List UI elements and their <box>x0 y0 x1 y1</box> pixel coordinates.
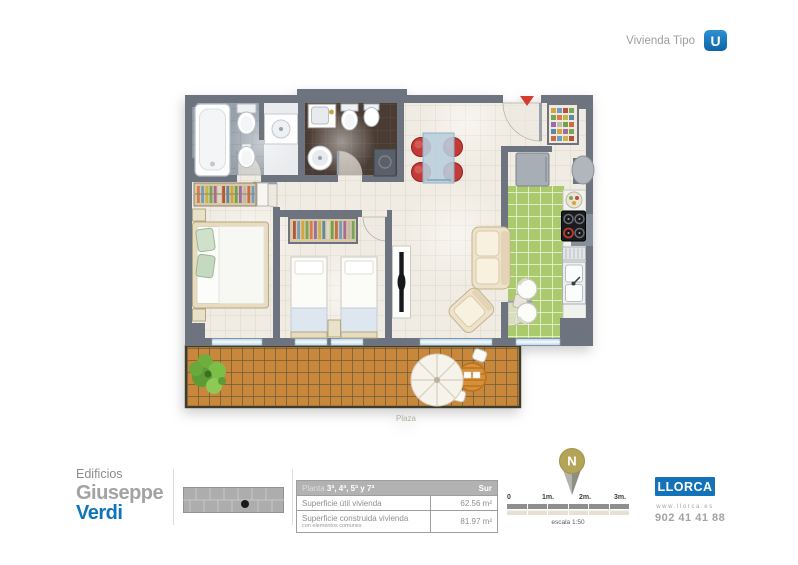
publisher-website: www.llorca.es <box>655 504 715 510</box>
kitchen-sink <box>563 262 586 304</box>
dish-rack <box>563 247 586 260</box>
single-bed-1 <box>291 257 327 338</box>
compass-north-letter: N <box>567 454 576 469</box>
footer-divider-1 <box>173 469 174 525</box>
scale-tick-3: 3m. <box>614 494 626 501</box>
llorca-logo: LLORCA <box>655 477 715 496</box>
spec-table-header: Planta 3ª, 4ª, 5ª y 7ª Sur <box>297 481 497 495</box>
brand-line-1: Edificios <box>76 468 163 481</box>
scale-bar: 0 1m. 2m. 3m. escala 1:50 <box>507 494 629 530</box>
unit-location-dot <box>241 500 249 508</box>
unit-type-header: Vivienda Tipo U <box>626 30 727 51</box>
sofa <box>472 227 510 289</box>
scale-caption: escala 1:50 <box>507 519 629 526</box>
spec-value-util: 62.56 m² <box>430 496 497 510</box>
brand-line-2: Giuseppe <box>76 483 163 503</box>
spec-table-header-left: Planta 3ª, 4ª, 5ª y 7ª <box>302 484 374 493</box>
tv-unit <box>393 246 411 318</box>
terrace-umbrella <box>411 354 463 406</box>
spec-table: Planta 3ª, 4ª, 5ª y 7ª Sur Superficie út… <box>296 480 498 533</box>
publisher-block: LLORCA www.llorca.es 902 41 41 88 <box>655 477 715 524</box>
spec-row-util: Superficie útil vivienda 62.56 m² <box>297 495 497 510</box>
brand-logo: Edificios Giuseppe Verdi <box>76 468 163 524</box>
water-heater <box>572 156 594 184</box>
footer-divider-2 <box>292 469 293 525</box>
building-key-plan <box>183 487 284 514</box>
publisher-phone: 902 41 41 88 <box>655 512 715 524</box>
scale-bar-segments <box>507 504 629 516</box>
brand-line-3: Verdi <box>76 503 163 523</box>
entry-closet <box>548 104 578 144</box>
compass: N <box>551 447 593 499</box>
terrace <box>186 346 520 407</box>
nightstand <box>328 320 341 337</box>
fridge <box>516 153 549 186</box>
fruit-plate <box>566 192 582 208</box>
wardrobe-clothes-2 <box>293 221 355 239</box>
plaza-label: Plaza <box>396 414 417 423</box>
cooktop <box>562 211 586 241</box>
unit-type-label: Vivienda Tipo <box>626 35 695 47</box>
wardrobe-clothes <box>195 186 255 203</box>
master-bedroom <box>193 183 269 321</box>
spec-row-construida: Superficie construida vivienda con eleme… <box>297 510 497 532</box>
single-bed-2 <box>341 257 377 338</box>
double-bed <box>193 222 269 308</box>
floor-plan: Plaza <box>178 88 608 426</box>
scale-tick-2: 2m. <box>579 494 591 501</box>
scale-tick-0: 0 <box>507 494 511 501</box>
scale-tick-1: 1m. <box>542 494 554 501</box>
unit-type-badge: U <box>704 30 727 51</box>
spec-value-construida: 81.97 m² <box>430 511 497 532</box>
spec-table-header-right: Sur <box>479 484 492 493</box>
